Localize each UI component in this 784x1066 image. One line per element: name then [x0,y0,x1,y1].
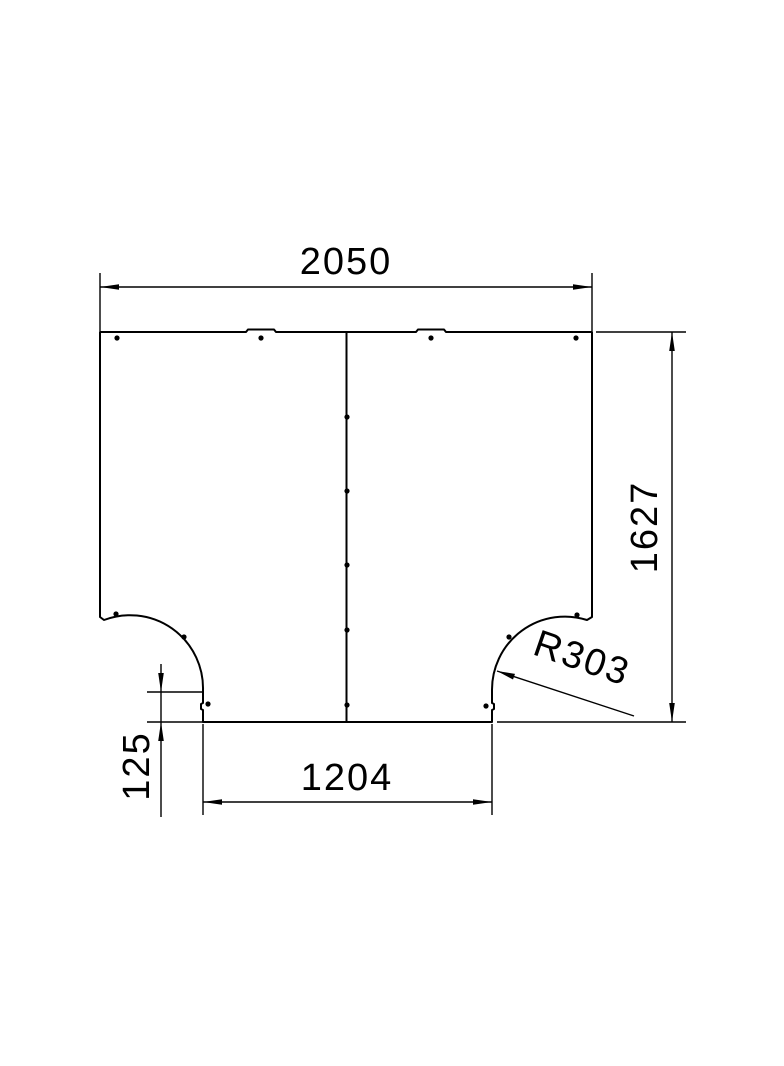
hole-marker [574,612,579,617]
hole-marker [258,335,263,340]
hole-marker [114,335,119,340]
technical-drawing: 2050 1627 1204 125 [0,0,784,1066]
arrowhead-bottom [669,703,675,722]
arrowhead-right [573,284,592,290]
hole-marker [506,634,511,639]
drawing-canvas: 2050 1627 1204 125 [0,0,784,1066]
dim-edge-offset: 125 [116,664,203,817]
arrowhead-radius [497,671,515,680]
dim-branch-width: 1204 [203,724,492,815]
hole-marker [344,702,349,707]
dim-edge-offset-label: 125 [116,731,158,800]
arrowhead-down [158,673,164,692]
hole-marker [344,414,349,419]
hole-marker [573,335,578,340]
hole-marker [113,611,118,616]
hole-marker [428,335,433,340]
hole-marker [344,488,349,493]
arrowhead-right [473,799,492,805]
dim-overall-width: 2050 [100,241,592,331]
hole-marker [181,634,186,639]
dim-overall-width-label: 2050 [300,241,393,283]
hole-marker [344,562,349,567]
arrowhead-top [669,332,675,351]
dim-branch-width-label: 1204 [301,757,394,799]
hole-marker [344,627,349,632]
arrowhead-left [100,284,119,290]
dim-corner-radius: R303 [497,623,635,716]
dim-corner-radius-label: R303 [528,623,635,695]
part-outline-group [100,330,592,723]
hole-marker [483,703,488,708]
arrowhead-up [158,722,164,741]
arrowhead-left [203,799,222,805]
dim-overall-height-label: 1627 [624,481,666,574]
hole-marker [205,701,210,706]
